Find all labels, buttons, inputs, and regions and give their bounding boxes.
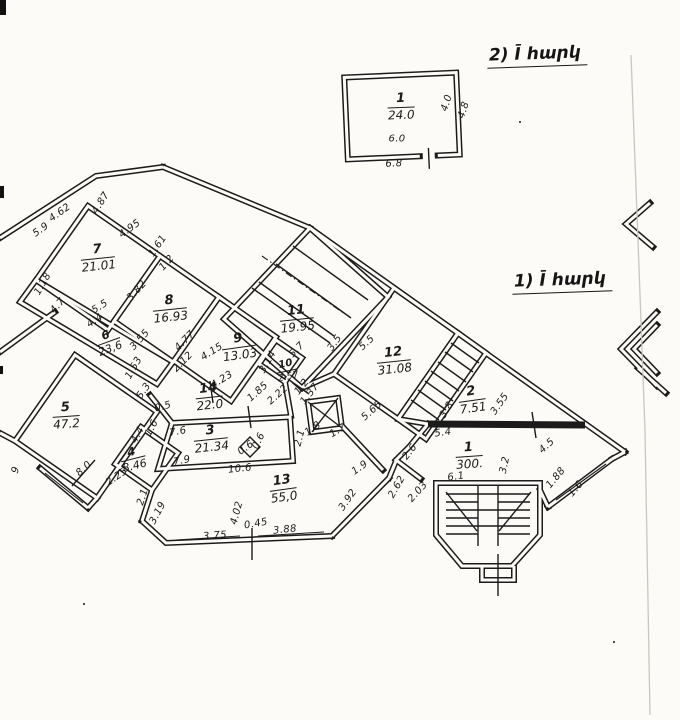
dimension-label: 0.5 xyxy=(153,399,172,414)
dimension-label: 5.65 xyxy=(359,399,384,423)
room-area: 21.01 xyxy=(81,257,117,275)
room-label-8: 816.93 xyxy=(151,292,188,325)
dimension-label: 3.19 xyxy=(148,500,169,526)
room-area: 300. xyxy=(456,456,484,472)
dimension-label: 2.25 xyxy=(104,466,130,489)
dimension-label: 4.8 xyxy=(456,100,472,120)
dimension-label: 4.7 xyxy=(48,296,68,316)
dimension-label: 1.53 xyxy=(123,355,144,381)
room-label-2: 27.51 xyxy=(457,383,488,416)
dimension-label: 5.3 xyxy=(135,381,154,401)
dimension-label: 3.5 xyxy=(326,333,345,353)
dimension-label: 3.2 xyxy=(498,455,512,474)
dimension-label: 5.9 xyxy=(31,221,51,240)
room-area: 21.34 xyxy=(194,438,230,456)
dimension-label: 1.6 xyxy=(143,418,161,438)
dimension-label: 6.8 xyxy=(385,158,402,170)
dimension-label: 3.55 xyxy=(489,391,512,417)
dimension-label: 5.5 xyxy=(357,333,377,353)
room-label-11: 1119.95 xyxy=(278,302,315,335)
dimension-label: 3.92 xyxy=(337,487,360,513)
dimension-label: 6.0 xyxy=(388,134,405,145)
dimension-label: 1.2 xyxy=(157,253,177,273)
dimension-label: 4.5 xyxy=(537,436,557,456)
dimension-label: 4.0 xyxy=(439,93,455,113)
dimension-label: 6.1 xyxy=(447,470,465,483)
room-label-7: 721.01 xyxy=(79,241,116,274)
room-label-1: 1300. xyxy=(455,440,484,472)
dimension-label: 2.12 xyxy=(171,350,196,375)
dimension-label: 2.03 xyxy=(406,479,430,504)
room-label-1: 124.0 xyxy=(387,92,415,123)
dimension-label: 1.9 xyxy=(350,459,370,478)
room-label-3: 321.34 xyxy=(192,422,229,455)
scanned-floorplan-page: 2) Ī հարկ 1) Ī հարկ 124.0721.01816.93623… xyxy=(0,0,680,720)
dimension-label: 3.55 xyxy=(128,327,152,352)
dimension-label: 1.7 xyxy=(328,422,348,440)
dimension-label: 4.87 xyxy=(90,190,112,216)
label-layer: 124.0721.01816.93623,6913.03102.571119.9… xyxy=(0,0,680,720)
room-label-5: 547.2 xyxy=(52,400,81,432)
room-area: 31.08 xyxy=(377,360,413,378)
dimension-label: 4.23 xyxy=(209,369,235,391)
dimension-label: 10.6 xyxy=(228,462,253,475)
dimension-label: 3.88 xyxy=(273,523,298,536)
dimension-label: 4.15 xyxy=(199,341,225,363)
room-area: 47.2 xyxy=(53,416,81,432)
dimension-label: 1.6 xyxy=(566,479,585,499)
dimension-label: 4.95 xyxy=(117,218,143,241)
room-number: 1 xyxy=(387,92,414,109)
room-label-6: 623,6 xyxy=(92,325,124,359)
dimension-label: 2.6 xyxy=(400,442,419,462)
dimension-label: 5.4 xyxy=(434,426,452,439)
dimension-label: 0.45 xyxy=(243,517,268,532)
dimension-label: 3.75 xyxy=(203,530,228,543)
dimension-label: 9 xyxy=(10,465,23,475)
dimension-label: 7.9 xyxy=(173,454,192,468)
room-label-12: 1231.08 xyxy=(375,344,412,377)
room-area: 7.51 xyxy=(459,399,487,417)
room-area: 19.95 xyxy=(280,318,316,336)
dimension-label: 8.0 xyxy=(74,459,94,479)
dimension-label: 2.1 xyxy=(135,487,151,507)
dimension-label: 3.82 xyxy=(125,278,149,303)
room-area: 24.0 xyxy=(388,107,415,122)
dimension-label: 2.62 xyxy=(386,474,407,500)
dimension-label: 4.62 xyxy=(47,202,73,225)
dimension-label: 1.88 xyxy=(544,465,568,490)
dimension-label: 1.18 xyxy=(32,271,53,297)
dimension-label: 0.6 xyxy=(250,431,267,451)
dimension-label: 4.4 xyxy=(129,425,147,445)
room-label-13: 1355,0 xyxy=(268,472,299,505)
room-label-9: 913.03 xyxy=(220,330,258,365)
room-area: 22.0 xyxy=(196,396,224,413)
dimension-label: 3.8 xyxy=(438,400,456,420)
room-label-10: 102.57 xyxy=(274,358,299,385)
room-area: 55,0 xyxy=(270,488,298,506)
room-area: 16.93 xyxy=(153,308,189,326)
dimension-label: 7.6 xyxy=(169,425,188,439)
dimension-label: 2.1 xyxy=(292,428,307,447)
dimension-label: 4.77 xyxy=(173,329,198,354)
